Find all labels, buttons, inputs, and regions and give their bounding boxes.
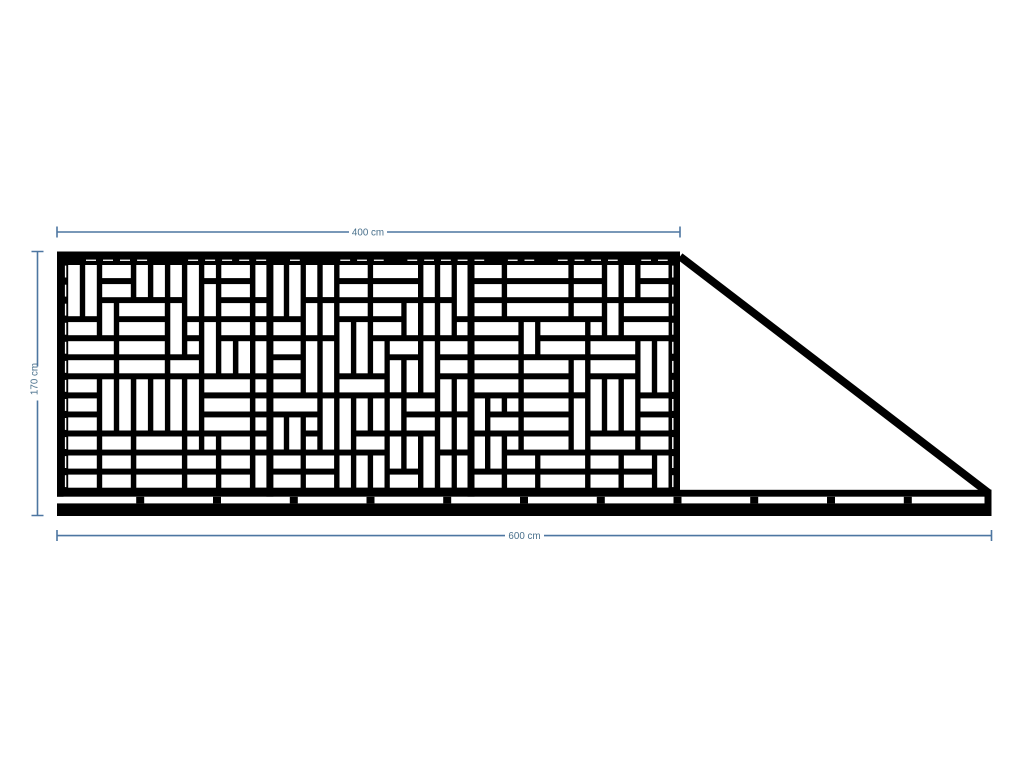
svg-text:400 cm: 400 cm	[352, 227, 384, 238]
svg-text:600 cm: 600 cm	[508, 531, 540, 542]
svg-text:170 cm: 170 cm	[30, 363, 41, 395]
